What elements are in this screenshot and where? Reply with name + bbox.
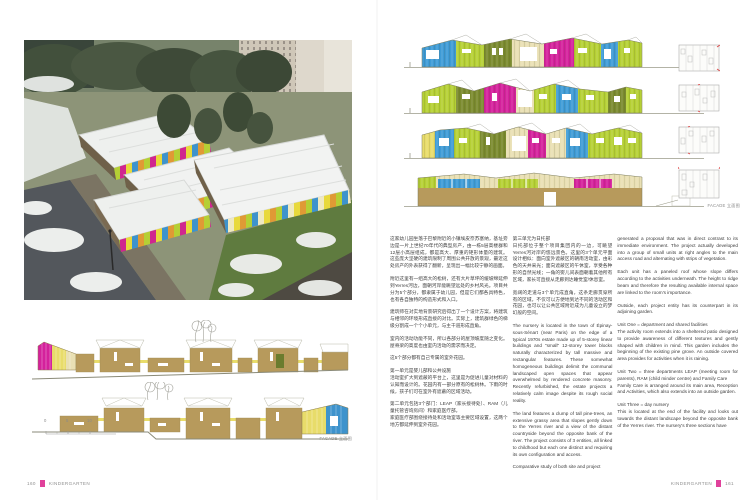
right-page-footer: KINDERGARTEN 161 bbox=[671, 480, 734, 487]
page-gutter bbox=[376, 0, 378, 500]
key-plan-4 bbox=[678, 166, 720, 202]
paragraph: 附近这里有一组高大的松树，还有大片草坪的缓坡绵延伸到Yerres河边，面朝河岸能… bbox=[390, 276, 508, 303]
paragraph: Unit Three = day nursery This is located… bbox=[617, 402, 738, 429]
paragraph: generated a proposal that was in direct … bbox=[617, 236, 738, 263]
right-facade-elevation-2 bbox=[404, 78, 704, 126]
left-page-number: 160 bbox=[27, 481, 36, 486]
scale-tick-5: 5 bbox=[66, 418, 69, 423]
left-page-footer: 160 KINDERGARTEN bbox=[27, 480, 90, 487]
right-page-text: 这家幼儿园坐落于巴黎附近的小镇埃皮奈苏塞纳，基址旁边是一片上世纪70年代的典型房… bbox=[390, 236, 738, 468]
right-footer-label: KINDERGARTEN bbox=[671, 481, 712, 486]
scale-bar bbox=[44, 425, 134, 437]
paragraph: 第二单元包括3个部门：LEAP（家长接待处）、RAM（儿童托管咨询房间）和家庭医… bbox=[390, 401, 508, 428]
left-facade-label: FACADE 立面图 bbox=[252, 436, 352, 442]
paragraph: 建筑师在对实地背景研究后得出了一个设计方案，将建筑与相邻的环境形成直接的对比。实… bbox=[390, 309, 508, 329]
text-column-2: 第三单元为日托部 日托部位于整个项目集团内的一边，可眺望Yerres河对岸的悠远… bbox=[513, 236, 613, 468]
left-facade-elevation-1 bbox=[30, 320, 352, 382]
aerial-photo bbox=[24, 40, 352, 300]
scale-tick-0: 0 bbox=[44, 418, 47, 423]
scale-tick-10: 10 bbox=[87, 418, 92, 423]
paragraph: 第一单元是婴儿部和公共设施 活动室扩大到遮蔽的平台上，这里是为促进儿童对材料的认… bbox=[390, 368, 508, 395]
paragraph: The nursery is located in the town of Ép… bbox=[513, 323, 613, 405]
key-plan-3 bbox=[678, 126, 720, 156]
paragraph: Outside, each project entity has its cou… bbox=[617, 303, 738, 317]
left-footer-label: KINDERGARTEN bbox=[49, 481, 90, 486]
paragraph: Unit Two = three departments LEAP (meeti… bbox=[617, 369, 738, 396]
text-column-1: 这家幼儿园坐落于巴黎附近的小镇埃皮奈苏塞纳，基址旁边是一片上世纪70年代的典型房… bbox=[390, 236, 508, 468]
paragraph: 宽阔的走道与3个单元成直角，这条走廊贯穿所有的区域，不仅可以方便地到达不同的活动… bbox=[513, 290, 613, 317]
paragraph: 第三单元为日托部 日托部位于整个项目集团内的一边，可眺望Yerres河对岸的悠远… bbox=[513, 236, 613, 284]
paragraph: 这家幼儿园坐落于巴黎附近的小镇埃皮奈苏塞纳，基址旁边是一片上世纪70年代的典型房… bbox=[390, 236, 508, 270]
footer-accent-square bbox=[40, 480, 45, 487]
paragraph: 这5个部分都有自己专属的室外花园。 bbox=[390, 355, 508, 362]
aerial-photo-illustration bbox=[24, 40, 352, 300]
right-facade-elevation-1 bbox=[404, 32, 704, 80]
text-column-3: generated a proposal that was in direct … bbox=[617, 236, 738, 468]
paragraph: Unit One = department and shared facilit… bbox=[617, 322, 738, 363]
key-plan-1 bbox=[678, 44, 720, 74]
key-plan-2 bbox=[678, 84, 720, 114]
paragraph: The land features a clump of tall pine-t… bbox=[513, 411, 613, 459]
right-facade-label: FACADE 立面图 bbox=[640, 203, 740, 209]
right-page-number: 161 bbox=[725, 481, 734, 486]
paragraph: 室内的活动功能不同，所以各部分的屋顶坡度随之变化。屋脊梁的高度也由室内活动的需求… bbox=[390, 336, 508, 350]
footer-accent-square bbox=[716, 480, 721, 487]
paragraph: Each unit has a paneled roof whose slope… bbox=[617, 269, 738, 296]
paragraph: Comparative study of both site and proje… bbox=[513, 464, 613, 471]
